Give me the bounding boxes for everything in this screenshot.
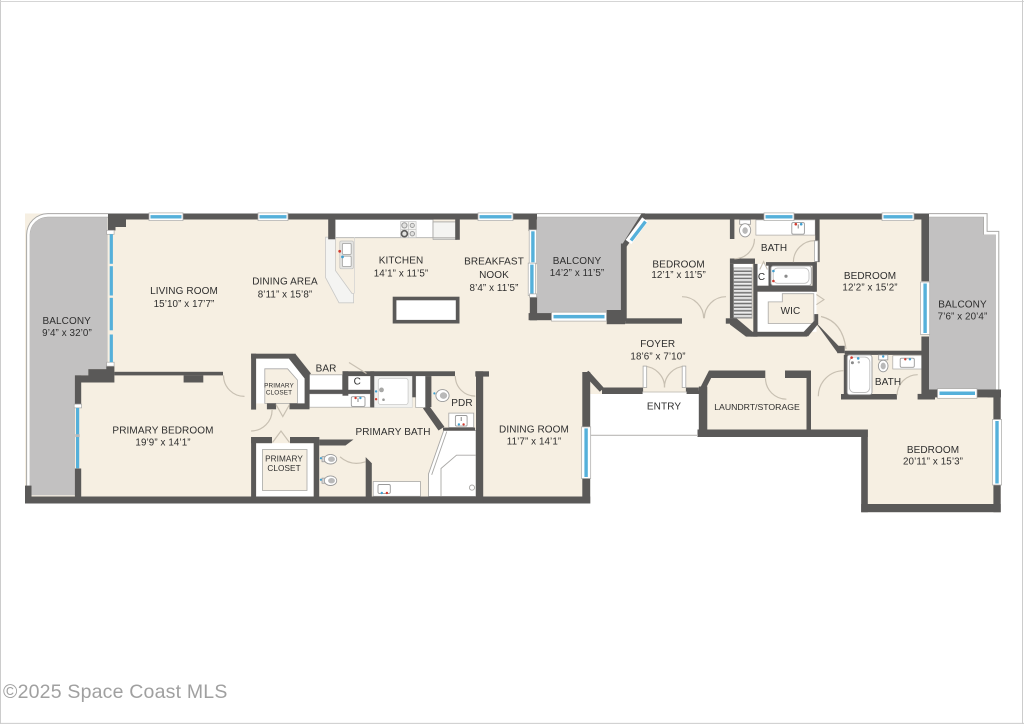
svg-text:DINING AREA: DINING AREA <box>252 277 318 288</box>
svg-text:20’11” x 15’3”: 20’11” x 15’3” <box>903 457 963 468</box>
svg-text:BATH: BATH <box>761 243 787 254</box>
svg-text:BATH: BATH <box>875 377 901 388</box>
svg-text:11’7” x 14’1”: 11’7” x 14’1” <box>507 437 561 448</box>
svg-text:©2025 Space Coast MLS: ©2025 Space Coast MLS <box>3 681 228 703</box>
svg-text:8’4” x 11’5”: 8’4” x 11’5” <box>470 283 519 294</box>
svg-text:12’1” x 11’5”: 12’1” x 11’5” <box>651 270 705 281</box>
svg-text:BALCONY: BALCONY <box>42 316 91 327</box>
svg-text:BAR: BAR <box>316 364 337 375</box>
svg-text:ENTRY: ENTRY <box>647 402 681 413</box>
svg-text:8’11” x 15’8”: 8’11” x 15’8” <box>258 290 312 301</box>
svg-text:PRIMARY: PRIMARY <box>265 455 303 464</box>
svg-text:DINING ROOM: DINING ROOM <box>499 425 569 436</box>
svg-text:FOYER: FOYER <box>640 339 675 350</box>
svg-text:14’1” x 11’5”: 14’1” x 11’5” <box>374 269 428 280</box>
svg-text:15’10” x 17’7”: 15’10” x 17’7” <box>154 299 215 310</box>
svg-text:WIC: WIC <box>781 306 801 317</box>
svg-text:9’4” x 32’0”: 9’4” x 32’0” <box>42 328 92 339</box>
svg-text:BREAKFAST: BREAKFAST <box>464 257 524 268</box>
svg-text:12’2” x 15’2”: 12’2” x 15’2” <box>842 283 897 294</box>
svg-text:18’6” x 7’10”: 18’6” x 7’10” <box>630 352 685 363</box>
svg-text:BEDROOM: BEDROOM <box>844 271 896 282</box>
svg-text:7’6” x 20’4”: 7’6” x 20’4” <box>938 312 988 323</box>
svg-text:PDR: PDR <box>451 398 472 409</box>
svg-text:NOOK: NOOK <box>479 270 509 281</box>
svg-text:LAUNDRT/STORAGE: LAUNDRT/STORAGE <box>714 402 800 412</box>
svg-text:CLOSET: CLOSET <box>266 389 292 396</box>
svg-text:BEDROOM: BEDROOM <box>907 445 959 456</box>
svg-text:BALCONY: BALCONY <box>938 300 987 311</box>
svg-text:C: C <box>354 376 361 387</box>
svg-text:BALCONY: BALCONY <box>553 256 602 267</box>
svg-text:LIVING ROOM: LIVING ROOM <box>150 286 218 297</box>
svg-text:PRIMARY BEDROOM: PRIMARY BEDROOM <box>112 426 213 437</box>
svg-text:C: C <box>758 272 765 283</box>
svg-text:14’2” x 11’5”: 14’2” x 11’5” <box>550 268 604 279</box>
svg-text:BEDROOM: BEDROOM <box>652 260 704 271</box>
svg-text:19’9” x 14’1”: 19’9” x 14’1” <box>135 438 190 449</box>
svg-text:CLOSET: CLOSET <box>267 464 300 473</box>
svg-text:PRIMARY BATH: PRIMARY BATH <box>355 427 430 438</box>
svg-text:KITCHEN: KITCHEN <box>379 256 424 267</box>
